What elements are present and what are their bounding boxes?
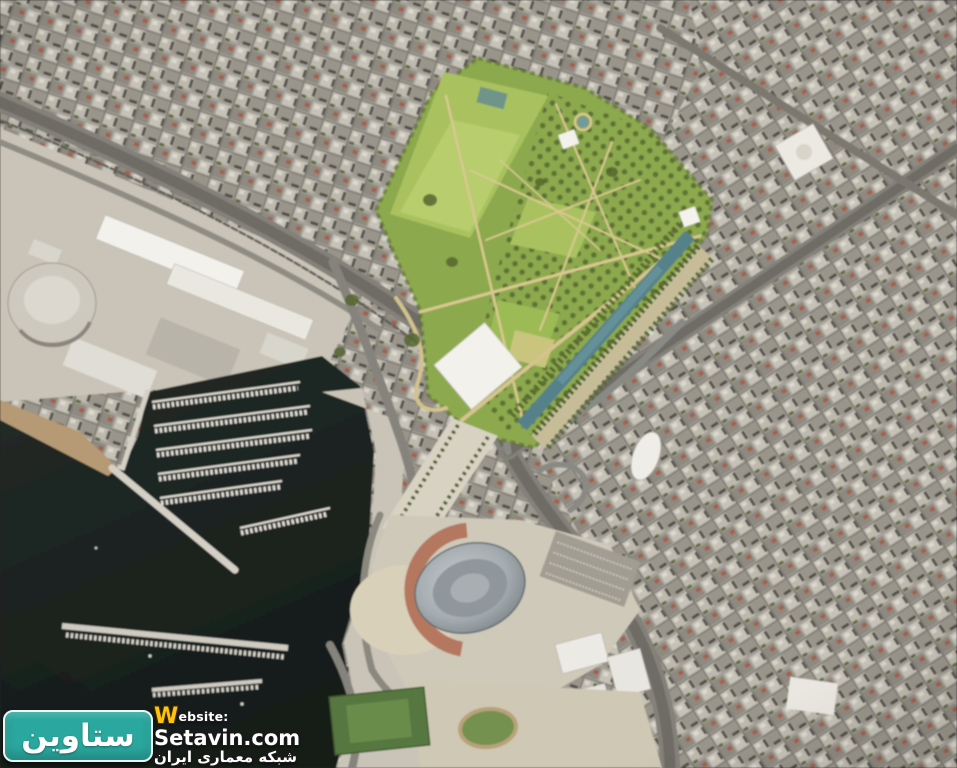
website-rest: ebsite: [178,709,228,724]
vignette [0,0,957,768]
subtitle-farsi: شبکه معماری ایران [154,750,300,766]
aerial-map [0,0,957,768]
watermark-text-block: Website: Setavin.com شبکه معماری ایران [154,705,300,766]
watermark: ستاوین Website: Setavin.com شبکه معماری … [0,698,300,768]
satellite-masterplan-screenshot: ستاوین Website: Setavin.com شبکه معماری … [0,0,957,768]
setavin-badge: ستاوین [3,710,153,762]
photo-layer [0,0,957,768]
setavin-badge-text: ستاوین [21,721,135,752]
domain-text: Setavin.com [154,727,300,749]
website-label: Website: [154,705,300,728]
